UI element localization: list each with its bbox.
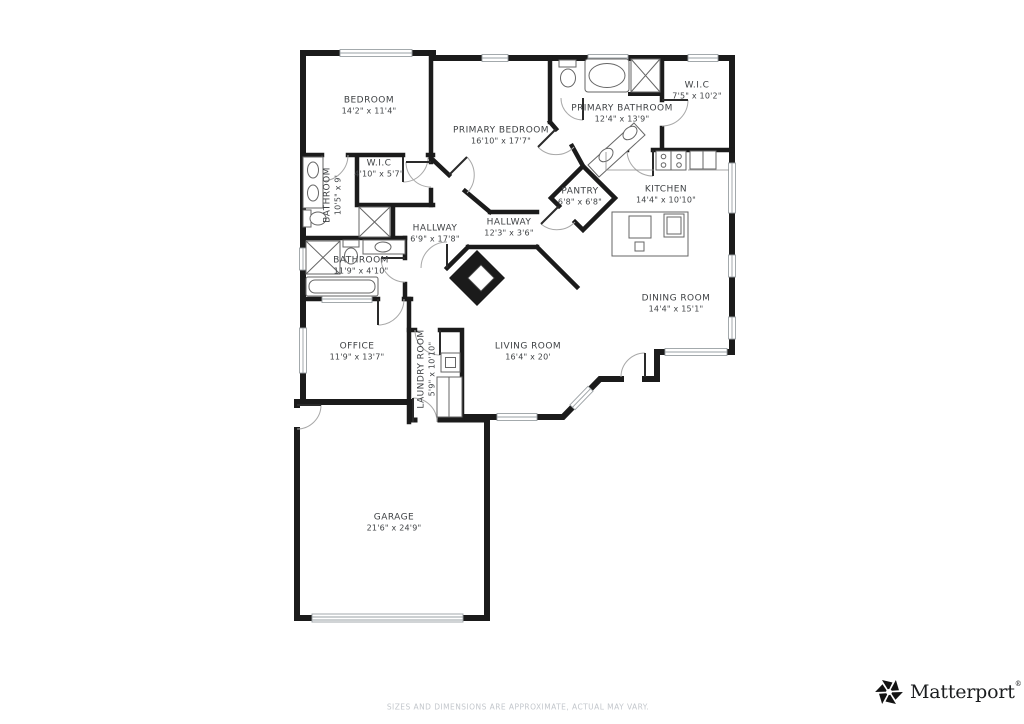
door-arc-pantry (541, 222, 575, 230)
garage-door (312, 614, 463, 622)
window (497, 414, 537, 421)
room-label-office: OFFICE 11'9" x 13'7" (330, 341, 385, 362)
window (300, 248, 307, 270)
door-arc-office (378, 299, 404, 325)
room-label-bedroom: BEDROOM 14'2" x 11'4" (342, 95, 397, 116)
window (665, 349, 727, 356)
room-label-dining-room: DINING ROOM 14'4" x 15'1" (642, 293, 711, 314)
outer-wall-garage (297, 402, 487, 618)
room-label-garage: GARAGE 21'6" x 24'9" (367, 512, 422, 533)
room-label-kitchen: KITCHEN 14'4" x 10'10" (636, 184, 696, 205)
wall-primary-chamfer (431, 158, 537, 212)
room-label-bathroom-1: BATHROOM 10'5" x 9' (322, 167, 343, 223)
matterport-wordmark: Matterport® (910, 681, 1022, 703)
door-arc-bedroom (406, 162, 431, 187)
floor-plan-page: BEDROOM 14'2" x 11'4" PRIMARY BEDROOM 16… (0, 0, 1024, 724)
matterport-pinwheel-icon (874, 677, 904, 707)
room-label-primary-bedroom: PRIMARY BEDROOM 16'10" x 17'7" (453, 125, 549, 146)
door-arc-hall-closet (421, 242, 447, 268)
room-label-wic-bedroom: W.I.C 4'10" x 5'7" (354, 158, 403, 179)
room-label-wic-primary: W.I.C 7'5" x 10'2" (672, 80, 721, 101)
window (729, 163, 736, 213)
door-arc-primary-bedroom (467, 157, 474, 193)
room-label-primary-bathroom: PRIMARY BATHROOM 12'4" x 13'9" (571, 103, 673, 124)
room-label-hallway-2: HALLWAY 12'3" x 3'6" (484, 217, 533, 238)
matterport-logo: Matterport® (874, 677, 1022, 707)
room-label-laundry-room: LAUNDRY ROOM 5'9" x 10'10" (416, 329, 437, 408)
room-label-living-room: LIVING ROOM 16'4" x 20' (495, 341, 561, 362)
window (688, 55, 718, 62)
door-arc-entry (621, 353, 645, 377)
room-label-bathroom-2: BATHROOM 11'9" x 4'10" (333, 255, 389, 276)
window (482, 55, 508, 62)
room-label-hallway-1: HALLWAY 6'9" x 17'8" (410, 223, 459, 244)
laundry-fixtures (437, 353, 462, 417)
room-label-pantry: PANTRY 6'8" x 6'8" (558, 186, 602, 207)
window (570, 386, 593, 410)
window (729, 317, 736, 339)
door-arc-primary-bath (538, 147, 574, 155)
window (729, 255, 736, 277)
window (322, 296, 372, 303)
disclaimer-text: SIZES AND DIMENSIONS ARE APPROXIMATE, AC… (387, 703, 649, 712)
window (300, 328, 307, 373)
door-arc-kitchen (627, 150, 653, 176)
door-arc-garage-side (297, 405, 321, 429)
registered-mark: ® (1015, 680, 1022, 688)
window (340, 50, 412, 57)
